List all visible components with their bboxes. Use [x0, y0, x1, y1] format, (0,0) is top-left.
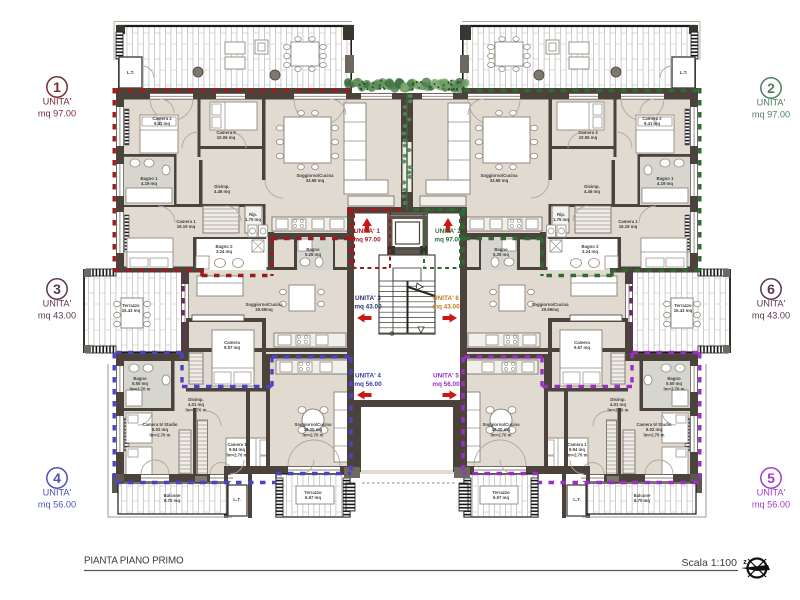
svg-text:lm=2.70 m: lm=2.70 m	[227, 452, 248, 457]
svg-text:20.69mq: 20.69mq	[541, 307, 559, 312]
svg-text:4.46 mq: 4.46 mq	[214, 189, 230, 194]
svg-text:3.24 mq: 3.24 mq	[582, 249, 598, 254]
svg-text:PIANTA PIANO PRIMO: PIANTA PIANO PRIMO	[84, 556, 184, 567]
svg-text:UNITA' 3: UNITA' 3	[355, 295, 381, 302]
svg-text:4.19 mq: 4.19 mq	[657, 181, 673, 186]
svg-text:20.69mq: 20.69mq	[255, 307, 273, 312]
svg-text:mq 43.00: mq 43.00	[354, 304, 382, 311]
svg-text:UNITA': UNITA'	[43, 97, 72, 107]
svg-text:16.19 mq: 16.19 mq	[619, 224, 638, 229]
svg-text:lm=2.70 m: lm=2.70 m	[567, 452, 588, 457]
svg-text:UNITA' 1: UNITA' 1	[354, 228, 380, 235]
svg-text:mq 56.00: mq 56.00	[354, 381, 382, 388]
svg-text:8.70 mq: 8.70 mq	[634, 498, 650, 503]
svg-text:6: 6	[767, 281, 775, 297]
svg-text:9.41 mq: 9.41 mq	[154, 121, 170, 126]
svg-text:lm=2.70 m: lm=2.70 m	[491, 432, 512, 437]
svg-text:mq 97.00: mq 97.00	[38, 109, 76, 119]
svg-text:10.06 mq: 10.06 mq	[217, 135, 236, 140]
svg-text:33.58 mq: 33.58 mq	[306, 178, 325, 183]
svg-text:mq 43.00: mq 43.00	[432, 304, 460, 311]
svg-text:Scala 1:100: Scala 1:100	[682, 557, 738, 569]
svg-text:mq 56.00: mq 56.00	[432, 381, 460, 388]
svg-text:lm=2.70 m: lm=2.70 m	[303, 432, 324, 437]
svg-text:mq 97.00: mq 97.00	[434, 237, 462, 244]
svg-text:6.67 mq: 6.67 mq	[493, 495, 509, 500]
svg-text:UNITA': UNITA'	[43, 299, 72, 309]
svg-text:L.T.: L.T.	[680, 70, 688, 75]
svg-text:1.75 mq: 1.75 mq	[553, 217, 569, 222]
svg-text:lm=2.70 m: lm=2.70 m	[664, 386, 685, 391]
svg-text:5: 5	[767, 470, 775, 486]
svg-text:mq 43.00: mq 43.00	[38, 311, 76, 321]
svg-text:UNITA': UNITA'	[43, 488, 72, 498]
svg-text:lm=2.70 m: lm=2.70 m	[608, 407, 629, 412]
svg-text:4.19 mq: 4.19 mq	[141, 181, 157, 186]
svg-text:5.28 mq: 5.28 mq	[493, 252, 509, 257]
svg-text:9.41 mq: 9.41 mq	[644, 121, 660, 126]
svg-text:3: 3	[53, 281, 61, 297]
svg-text:3.24 mq: 3.24 mq	[216, 249, 232, 254]
svg-text:mq 56.00: mq 56.00	[752, 500, 790, 510]
svg-text:L.T.: L.T.	[233, 497, 241, 502]
svg-text:9.57 mq: 9.57 mq	[574, 345, 590, 350]
svg-text:mq 43.00: mq 43.00	[752, 311, 790, 321]
svg-text:8.70 mq: 8.70 mq	[164, 498, 180, 503]
svg-text:lm=2.70 m: lm=2.70 m	[644, 432, 665, 437]
svg-text:4: 4	[53, 470, 61, 486]
svg-text:UNITA' 2: UNITA' 2	[435, 228, 461, 235]
svg-text:UNITA': UNITA'	[757, 488, 786, 498]
svg-text:mq 97.00: mq 97.00	[752, 110, 790, 120]
svg-text:lm=2.70 m: lm=2.70 m	[150, 432, 171, 437]
svg-text:2: 2	[767, 80, 775, 96]
svg-text:UNITA': UNITA'	[757, 299, 786, 309]
svg-text:L.T.: L.T.	[127, 70, 135, 75]
svg-text:lm=2.70 m: lm=2.70 m	[130, 386, 151, 391]
svg-text:UNITA': UNITA'	[757, 98, 786, 108]
svg-text:UNITA' 5: UNITA' 5	[433, 373, 459, 380]
svg-text:9.57 mq: 9.57 mq	[224, 345, 240, 350]
svg-text:16.19 mq: 16.19 mq	[177, 224, 196, 229]
svg-text:mq 97.00: mq 97.00	[353, 237, 381, 244]
svg-text:mq 56.00: mq 56.00	[38, 500, 76, 510]
svg-text:16.43 mq: 16.43 mq	[674, 308, 693, 313]
svg-text:16.43 mq: 16.43 mq	[122, 308, 141, 313]
svg-text:lm=2.70 m: lm=2.70 m	[186, 407, 207, 412]
svg-text:10.06 mq: 10.06 mq	[579, 135, 598, 140]
svg-text:1: 1	[53, 79, 61, 95]
svg-text:6.67 mq: 6.67 mq	[305, 495, 321, 500]
svg-text:33.58 mq: 33.58 mq	[490, 178, 509, 183]
svg-text:4.46 mq: 4.46 mq	[584, 189, 600, 194]
svg-text:5.28 mq: 5.28 mq	[305, 252, 321, 257]
svg-text:UNITA' 6: UNITA' 6	[433, 295, 459, 302]
svg-text:1.75 mq: 1.75 mq	[245, 217, 261, 222]
svg-text:L.T.: L.T.	[573, 497, 581, 502]
svg-text:z: z	[743, 559, 747, 566]
svg-text:UNITA' 4: UNITA' 4	[355, 373, 381, 380]
